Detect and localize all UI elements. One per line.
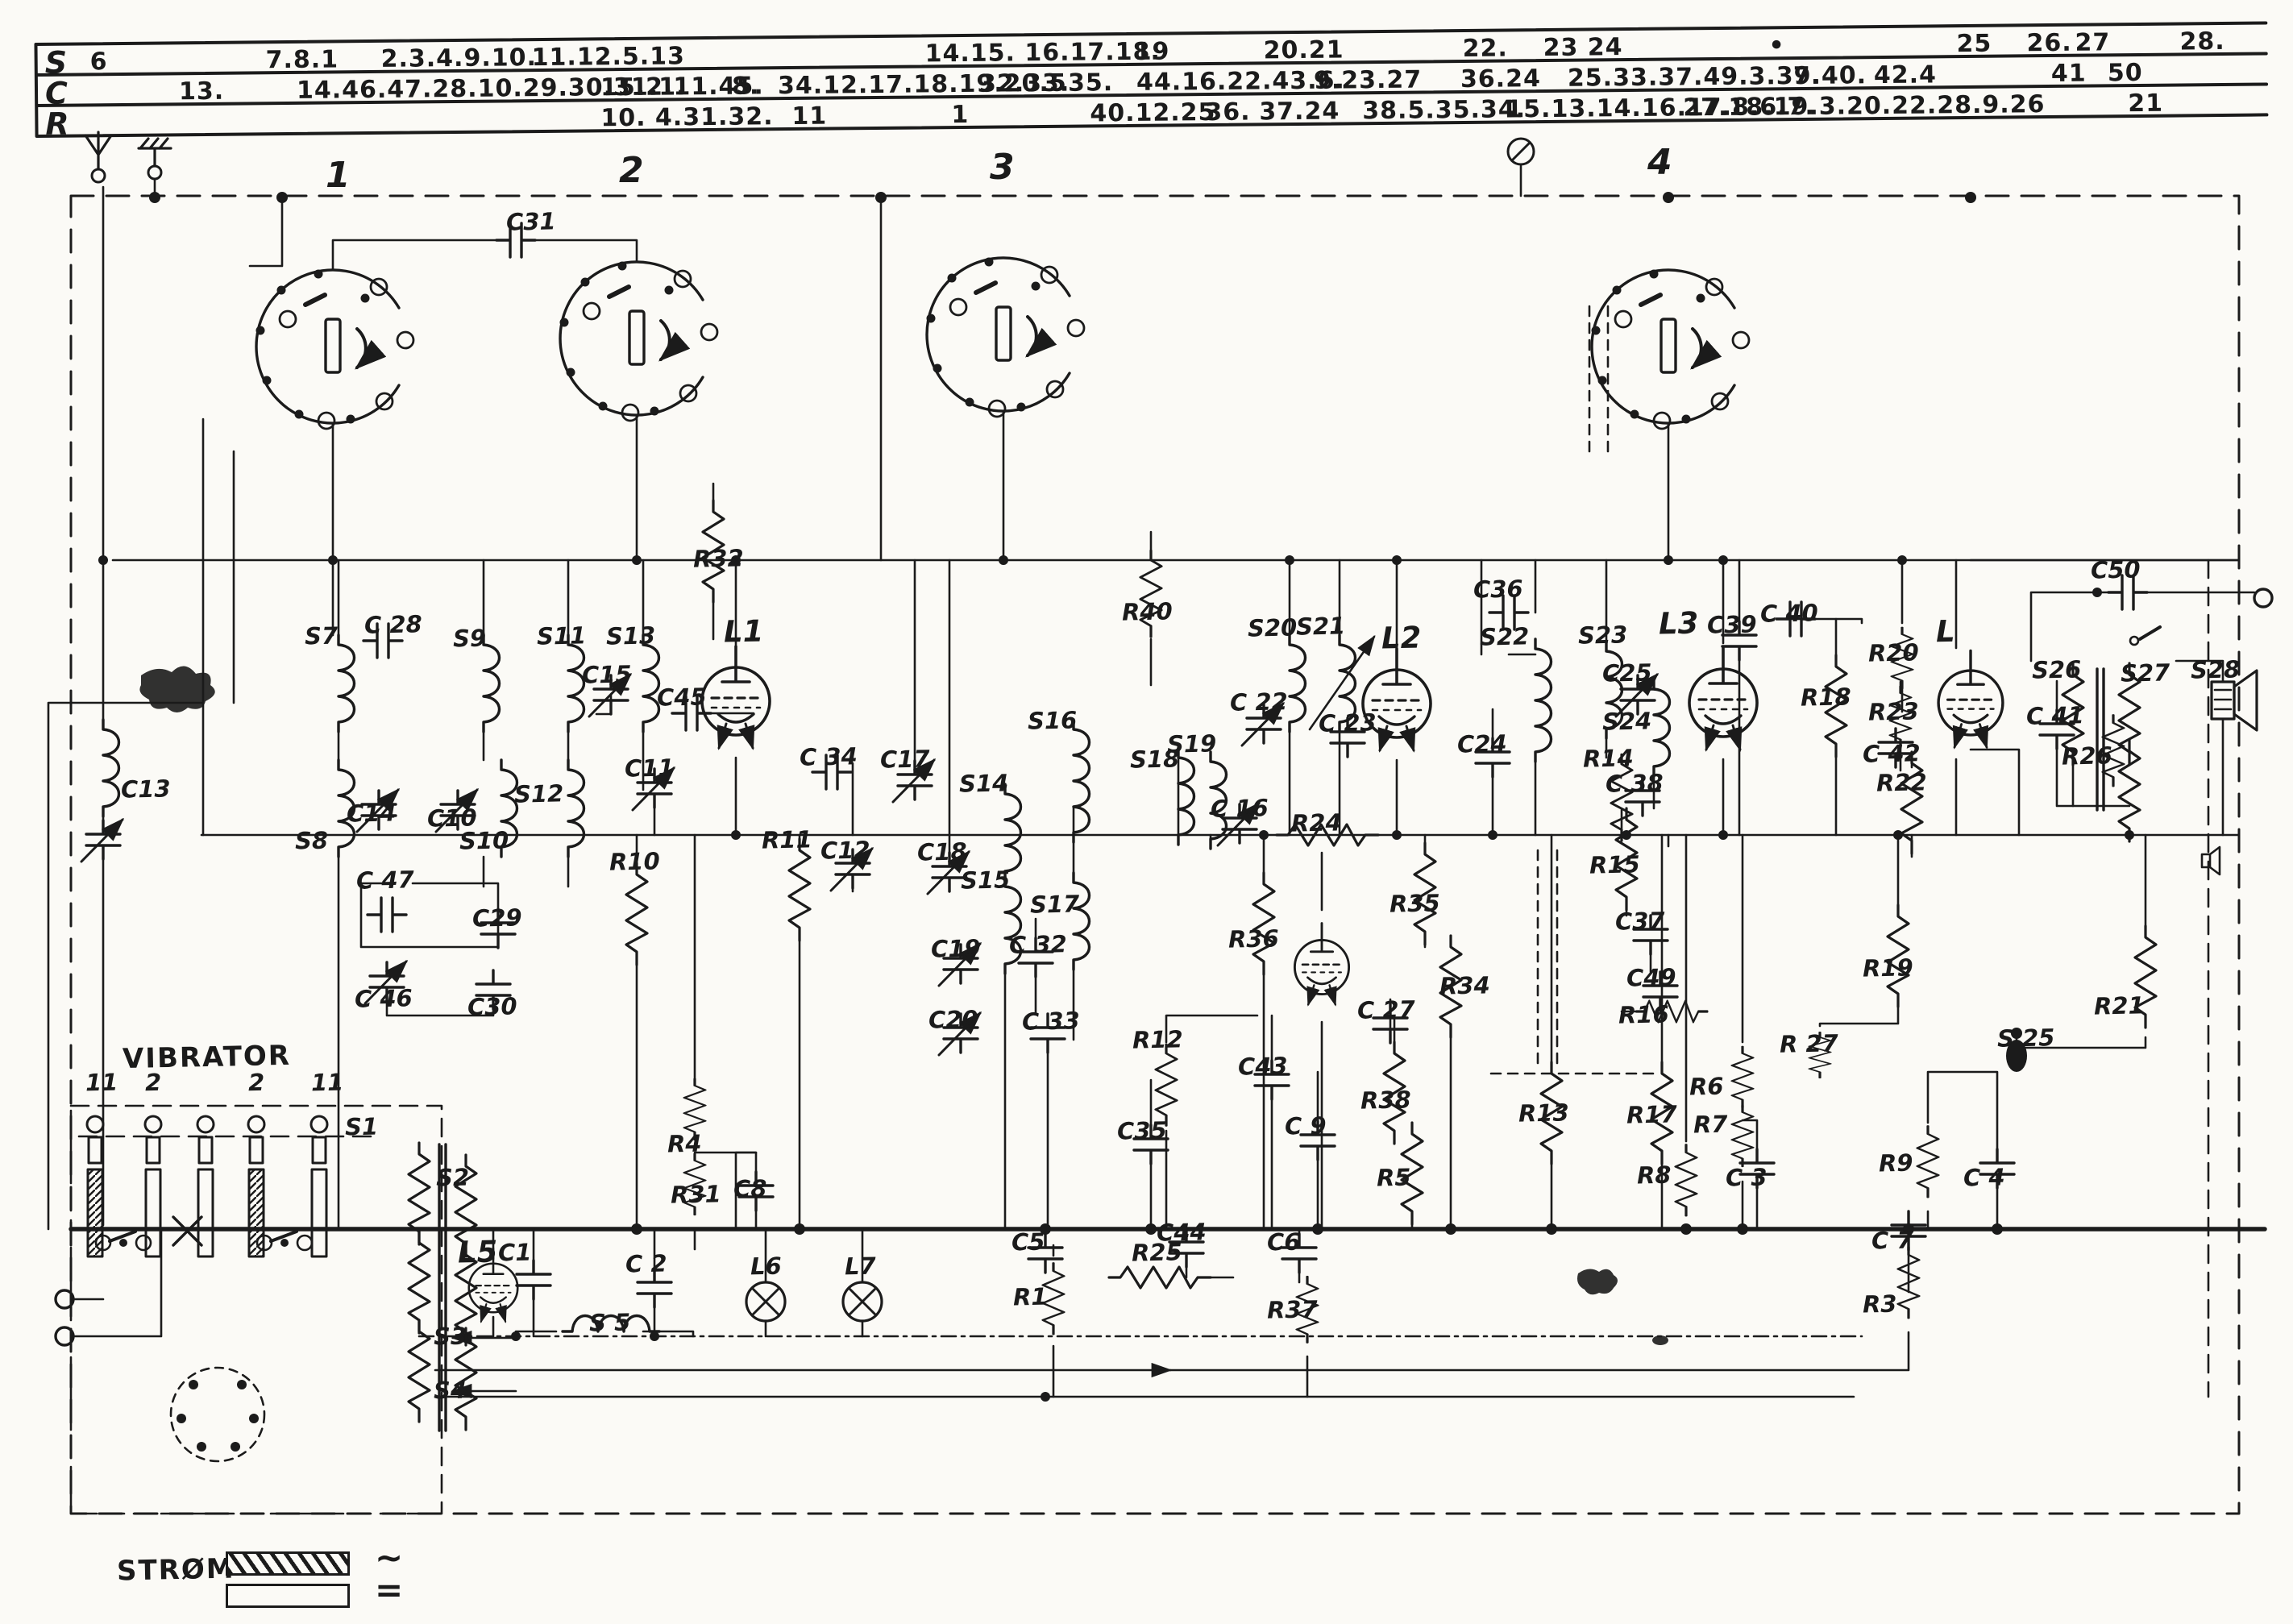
resistor-R7 xyxy=(1732,1106,1753,1167)
label-R19: R19 xyxy=(1863,953,1913,982)
label-L1: L1 xyxy=(724,613,764,649)
label-C15: C15 xyxy=(582,660,632,688)
label-C35: C35 xyxy=(1117,1116,1167,1144)
parts-table-cell-C-13: 41 xyxy=(2051,60,2087,88)
label-C24: C24 xyxy=(1457,729,1507,758)
label-R14: R14 xyxy=(1583,744,1634,772)
label-S21: S21 xyxy=(1296,612,1346,640)
label-R20: R20 xyxy=(1868,638,1919,667)
label-C41: C 41 xyxy=(2026,701,2084,729)
parts-table-cell-R-2: 40.12.25 xyxy=(1090,98,1215,127)
label-C19: C19 xyxy=(931,934,981,962)
label-C38: C 38 xyxy=(1606,769,1664,797)
section-marker-4: 4 xyxy=(1647,142,1672,183)
coil-S12 xyxy=(568,760,584,857)
label-R36: R36 xyxy=(1228,924,1279,953)
label-L3: L3 xyxy=(1659,605,1699,641)
parts-table-cell-S-6: 20.21 xyxy=(1263,35,1344,64)
label-C50: C50 xyxy=(2091,555,2141,584)
resistor-R8 xyxy=(1676,1144,1697,1215)
legend-dc-bar xyxy=(226,1584,350,1608)
label-R18: R18 xyxy=(1801,683,1851,711)
label-C27: C 27 xyxy=(1357,995,1415,1024)
output-jack xyxy=(2254,589,2272,607)
schematic-drawing xyxy=(0,0,2293,1624)
label-R21: R21 xyxy=(2094,991,2145,1020)
label-R1: R1 xyxy=(1013,1283,1048,1311)
label-S12: S12 xyxy=(514,779,564,808)
legend-title: STRØM xyxy=(117,1552,235,1587)
switch-above-S27 xyxy=(2130,627,2160,645)
resistor-R6 xyxy=(1732,1047,1753,1108)
label-C49: C49 xyxy=(1626,963,1676,991)
legend-dc-symbol: = xyxy=(375,1570,403,1609)
label-C8: C8 xyxy=(733,1175,767,1203)
band-switch-wafer-1 xyxy=(256,270,414,430)
label-L5: L5 xyxy=(458,1234,498,1269)
band-switch-wafer-3 xyxy=(927,258,1085,417)
parts-table-cell-S-4: 14.15. 16.17.18. xyxy=(924,38,1160,69)
vibrator-socket xyxy=(171,1368,264,1461)
label-C46: C 46 xyxy=(355,984,413,1012)
coil-S17 xyxy=(1074,873,1090,970)
label-L2: L2 xyxy=(1381,620,1422,655)
parts-table: S67.8.12.3.4.9.10.11.12.5.1314.15. 16.17… xyxy=(0,0,2293,161)
label-R40: R40 xyxy=(1122,597,1173,625)
parts-table-cell-S-5: 19 xyxy=(1134,37,1169,65)
label-C5: C5 xyxy=(1011,1228,1045,1256)
junction-dots xyxy=(98,192,2134,1402)
label-C42: C 42 xyxy=(1863,739,1921,767)
label-R37: R37 xyxy=(1267,1295,1318,1323)
label-S11: S11 xyxy=(537,621,587,650)
parts-table-cell-S-13: 28. xyxy=(2179,27,2224,56)
label-R13: R13 xyxy=(1518,1099,1569,1127)
parts-table-cell-C-11: 7. xyxy=(1793,62,1822,90)
label-R3: R3 xyxy=(1863,1290,1897,1319)
vibrator-title: VIBRATOR xyxy=(123,1040,292,1075)
label-R26: R26 xyxy=(2062,741,2112,770)
parts-table-cell-C-12: 42.4 xyxy=(1874,60,1937,89)
label-L: L xyxy=(1936,614,1955,649)
label-S27: S27 xyxy=(2121,658,2170,687)
capacitor-C13 xyxy=(81,820,123,862)
label-C22: C 22 xyxy=(1230,687,1288,716)
chassis-frame xyxy=(71,196,2239,1514)
label-R32: R32 xyxy=(693,544,744,572)
resistor-R36 xyxy=(1253,873,1274,974)
label-C45: C45 xyxy=(657,683,707,711)
label-R27: R 27 xyxy=(1780,1029,1838,1058)
parts-table-cell-S-11: 26. xyxy=(2026,29,2071,58)
parts-table-cell-R-4: 37.24 xyxy=(1259,97,1340,126)
vibrator-plunger-2 xyxy=(145,1116,161,1256)
parts-table-cell-C-10: 25.33.37.49.3.39.40. xyxy=(1568,61,1867,93)
label-C43: C43 xyxy=(1238,1052,1288,1080)
label-S23: S23 xyxy=(1578,621,1628,649)
label-C18: C18 xyxy=(917,837,967,866)
parts-table-cell-C-14: 50 xyxy=(2108,59,2143,87)
label-L7: L7 xyxy=(845,1252,876,1281)
parts-table-cell-C-5: 32.33. xyxy=(979,69,1070,98)
band-switch-wafer-2 xyxy=(560,262,718,422)
label-S2: S2 xyxy=(436,1164,470,1192)
label-C9: C 9 xyxy=(1285,1111,1327,1140)
label-C16: C 16 xyxy=(1211,794,1269,822)
resistor-R9 xyxy=(1917,1126,1938,1197)
parts-table-cell-C-3: 8. xyxy=(732,72,760,100)
label-R25: R25 xyxy=(1132,1238,1182,1266)
parts-table-cell-S-1: 7.8.1 xyxy=(266,45,339,74)
label-S5: S 5 xyxy=(589,1308,631,1336)
label-C12: C12 xyxy=(820,836,870,864)
label-C3: C 3 xyxy=(1726,1163,1768,1191)
parts-table-cell-R-5: 38.5.35.34. xyxy=(1362,95,1526,125)
parts-table-cell-S-12: 27 xyxy=(2075,28,2110,56)
parts-table-cell-S-9: • xyxy=(1768,31,1785,60)
label-C11: C11 xyxy=(625,754,675,782)
tube-L-output xyxy=(1938,650,2003,747)
label-S22: S22 xyxy=(1480,622,1530,650)
parts-table-cell-C-6: 35. xyxy=(1068,69,1113,98)
label-S1: S1 xyxy=(345,1113,379,1141)
coil-S7 xyxy=(339,635,355,732)
parts-table-cell-C-0: 13. xyxy=(179,77,224,106)
capacitor-C47 xyxy=(368,898,406,932)
label-S24: S24 xyxy=(1602,707,1652,735)
wiring-dashed xyxy=(71,306,2239,1514)
label-S26: S26 xyxy=(2032,655,2082,683)
choke-L7 xyxy=(843,1282,882,1321)
label-C20: C20 xyxy=(928,1005,978,1033)
label-C28: C 28 xyxy=(364,610,422,638)
parts-table-cell-R-3: 36. xyxy=(1205,98,1250,127)
label-R11: R11 xyxy=(762,825,812,854)
label-R5: R5 xyxy=(1377,1164,1411,1192)
wiring-misc xyxy=(73,166,2254,1397)
label-C2: C 2 xyxy=(625,1249,667,1277)
label-C31: C31 xyxy=(506,207,556,235)
label-S7: S7 xyxy=(305,622,339,650)
label-C37: C37 xyxy=(1615,907,1665,935)
speaker-mini-icon xyxy=(2202,847,2220,874)
parts-table-cell-S-10: 25 xyxy=(1956,30,1992,58)
label-C4: C 4 xyxy=(1963,1163,2005,1191)
parts-table-row-letter-R: R xyxy=(45,106,69,142)
parts-table-cell-S-8: 23 24 xyxy=(1543,33,1622,62)
label-S10: S10 xyxy=(459,826,509,854)
resistor-R12 xyxy=(1156,1045,1177,1126)
label-C36: C36 xyxy=(1473,575,1523,603)
vibrator-contacts xyxy=(96,1217,312,1250)
label-C25: C25 xyxy=(1602,658,1652,687)
resistor-R10 xyxy=(626,863,647,965)
label-C32: C 32 xyxy=(1009,930,1067,958)
label-S3: S3 xyxy=(434,1323,467,1351)
label-C47: C 47 xyxy=(356,866,414,894)
label-vib-t4: 11 xyxy=(311,1069,344,1097)
label-C29: C29 xyxy=(472,903,522,932)
parts-table-cell-S-7: 22. xyxy=(1462,34,1507,63)
label-S9: S9 xyxy=(453,625,487,653)
label-S8: S8 xyxy=(295,827,329,855)
legend-ac-bar xyxy=(226,1551,350,1576)
label-S19: S19 xyxy=(1167,729,1217,758)
label-R31: R31 xyxy=(671,1180,721,1208)
label-R4: R4 xyxy=(667,1130,702,1158)
label-C23: C 23 xyxy=(1319,708,1377,737)
label-L6: L6 xyxy=(750,1252,782,1281)
vibrator-plunger-3 xyxy=(197,1116,214,1256)
label-C14: C14 xyxy=(347,799,397,827)
label-R17: R17 xyxy=(1626,1100,1677,1128)
coil-S18 xyxy=(1178,748,1194,845)
label-R8: R8 xyxy=(1637,1161,1672,1190)
coil-S22 xyxy=(1535,639,1552,762)
label-S13: S13 xyxy=(606,621,656,650)
parts-table-cell-S-3: 11.12.5.13 xyxy=(531,42,685,72)
parts-table-cell-R-8: 21 xyxy=(2128,89,2163,118)
label-C33: C 33 xyxy=(1022,1007,1080,1035)
label-R16: R16 xyxy=(1618,1000,1669,1028)
label-C7: C 7 xyxy=(1871,1226,1913,1254)
coil-S16 xyxy=(1074,720,1090,842)
tube-L1 xyxy=(702,646,770,748)
label-R23: R23 xyxy=(1868,697,1919,725)
vibrator-socket-pins xyxy=(177,1380,259,1452)
parts-table-cell-C-8: 9.23.27 xyxy=(1314,65,1423,94)
label-R35: R35 xyxy=(1390,889,1440,917)
parts-table-cell-R-7: 27.18.19.3.20.22.28.9.26 xyxy=(1683,90,2045,122)
label-R12: R12 xyxy=(1132,1025,1183,1053)
parts-table-cell-S-2: 2.3.4.9.10. xyxy=(381,44,538,73)
label-R24: R24 xyxy=(1291,808,1342,837)
label-S15: S15 xyxy=(961,866,1011,894)
label-R7: R7 xyxy=(1693,1111,1728,1139)
coil-S24 xyxy=(1654,679,1670,776)
coil-S20 xyxy=(1290,635,1306,732)
label-C30: C30 xyxy=(467,992,517,1020)
resistor-R11 xyxy=(789,839,810,941)
label-S28: S28 xyxy=(2191,655,2241,683)
label-vib-t1: 11 xyxy=(85,1069,118,1097)
tube-triode xyxy=(1294,924,1348,1005)
label-R38: R38 xyxy=(1360,1086,1411,1114)
label-S20: S20 xyxy=(1248,613,1298,642)
label-R6: R6 xyxy=(1689,1073,1724,1101)
label-R9: R9 xyxy=(1879,1149,1913,1178)
tube-L3 xyxy=(1689,648,1757,750)
label-C17: C17 xyxy=(880,745,930,773)
label-S14: S14 xyxy=(959,769,1009,797)
schematic-sheet: S67.8.12.3.4.9.10.11.12.5.1314.15. 16.17… xyxy=(0,0,2293,1624)
section-marker-2: 2 xyxy=(619,150,644,191)
label-R22: R22 xyxy=(1876,768,1927,796)
label-S17: S17 xyxy=(1030,890,1080,918)
label-C40: C 40 xyxy=(1760,599,1818,627)
label-R15: R15 xyxy=(1589,850,1640,878)
label-S16: S16 xyxy=(1028,706,1078,734)
section-marker-1: 1 xyxy=(326,155,351,196)
capacitor-C1 xyxy=(517,1261,550,1299)
label-S25: S 25 xyxy=(1997,1024,2055,1052)
section-marker-3: 3 xyxy=(990,147,1015,188)
resistor-R25 xyxy=(1109,1267,1211,1288)
parts-table-cell-C-9: 36.24 xyxy=(1460,64,1541,93)
parts-table-cell-R-1: 1 xyxy=(951,101,969,129)
parts-table-cell-R-0: 10. 4.31.32. 11 xyxy=(600,102,827,133)
coil-antenna xyxy=(103,720,119,816)
label-C34: C 34 xyxy=(800,742,858,770)
label-R34: R34 xyxy=(1439,971,1490,999)
vibrator-plunger-5 xyxy=(311,1116,327,1256)
choke-L6 xyxy=(746,1282,785,1321)
label-C1: C1 xyxy=(498,1239,532,1267)
label-R10: R10 xyxy=(609,847,660,875)
label-C39: C39 xyxy=(1707,610,1757,638)
band-switch-wafer-4 xyxy=(1592,270,1750,430)
parts-table-cell-S-0: 6 xyxy=(90,48,108,76)
label-C6: C6 xyxy=(1267,1228,1301,1256)
label-C13: C13 xyxy=(121,775,171,803)
label-S4: S4 xyxy=(434,1377,467,1405)
label-vib-t3: 2 xyxy=(248,1069,265,1096)
